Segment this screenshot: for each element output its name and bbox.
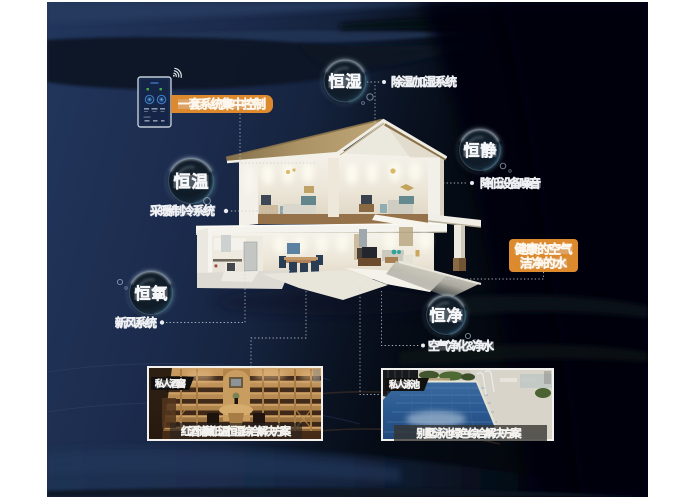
svg-text:恒湿: 恒湿 (329, 72, 362, 91)
svg-text:空气净化&净水: 空气净化&净水 (428, 338, 495, 353)
svg-text:恒温: 恒温 (174, 172, 209, 192)
svg-text:恒氧: 恒氧 (135, 284, 168, 303)
svg-text:一套系统集中控制: 一套系统集中控制 (178, 97, 266, 112)
svg-text:新风系统: 新风系统 (115, 315, 157, 330)
svg-text:健康的空气: 健康的空气 (515, 242, 573, 257)
svg-text:降低设备噪音: 降低设备噪音 (480, 176, 541, 191)
svg-text:红酒储藏低温恒湿综合解决方案: 红酒储藏低温恒湿综合解决方案 (181, 424, 292, 438)
svg-text:恒静: 恒静 (464, 141, 497, 160)
svg-text:私人泳池: 私人泳池 (388, 379, 420, 391)
svg-text:采暖/制冷系统: 采暖/制冷系统 (149, 203, 215, 218)
svg-text:除湿/加湿系统: 除湿/加湿系统 (391, 74, 457, 89)
svg-text:洁净的水: 洁净的水 (520, 256, 567, 271)
svg-text:私人酒窖: 私人酒窖 (154, 378, 186, 390)
svg-text:别墅泳池绿色综合解决方案: 别墅泳池绿色综合解决方案 (416, 426, 523, 440)
svg-text:恒净: 恒净 (430, 306, 463, 325)
